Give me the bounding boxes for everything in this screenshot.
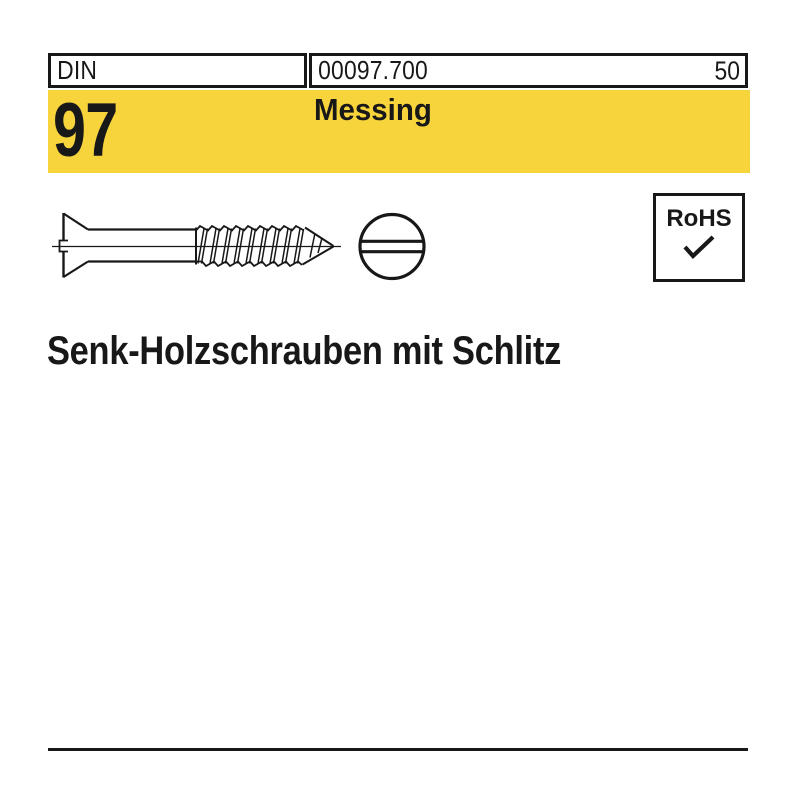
checkmark-icon xyxy=(681,234,717,260)
material-banner: 97 Messing xyxy=(48,90,750,173)
article-number: 00097.700 xyxy=(312,55,428,86)
catalog-page: DIN 00097.700 50 97 Messing xyxy=(0,0,800,800)
standard-label: DIN xyxy=(51,55,97,86)
screw-front-view-icon xyxy=(360,215,424,279)
screw-technical-drawing xyxy=(40,180,480,310)
page-title: Senk-Holzschrauben mit Schlitz xyxy=(47,329,561,373)
header-standard-cell: DIN xyxy=(48,53,307,88)
page-number: 50 xyxy=(715,55,740,86)
rohs-badge: RoHS xyxy=(653,193,745,282)
footer-divider xyxy=(48,748,748,751)
screw-side-view-icon xyxy=(52,213,341,278)
din-standard-number: 97 xyxy=(53,93,117,169)
rohs-label: RoHS xyxy=(666,207,731,231)
header-article-cell: 00097.700 50 xyxy=(309,53,748,88)
material-label: Messing xyxy=(314,92,432,128)
